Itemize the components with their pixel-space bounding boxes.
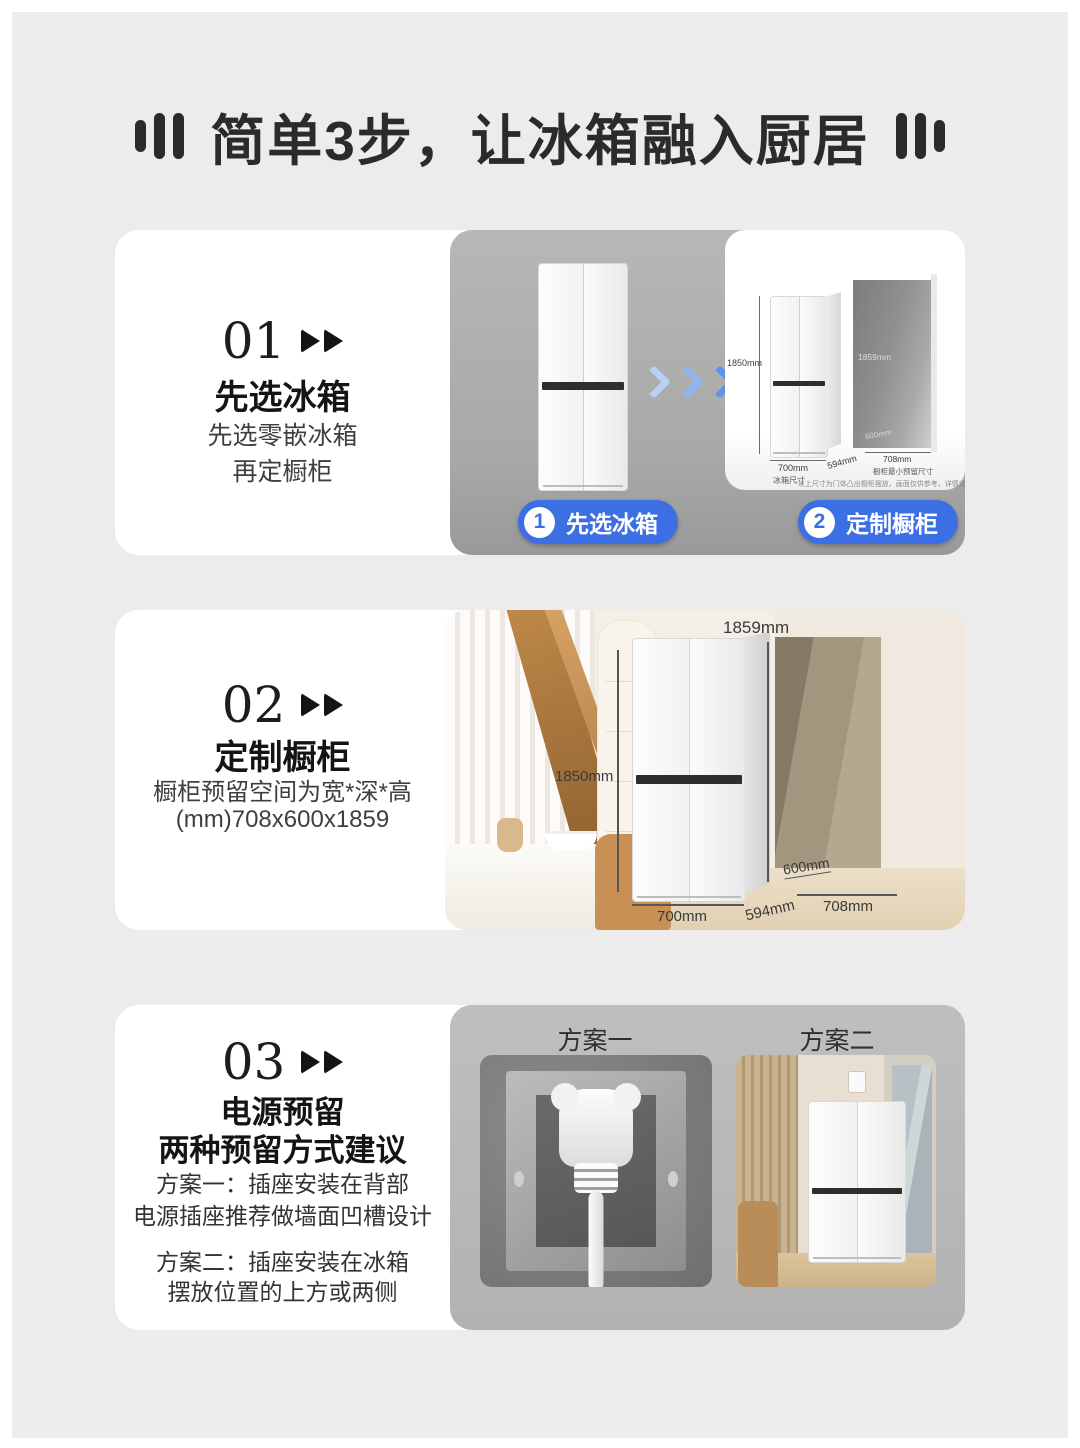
badge-custom-cabinet: 2 定制橱柜 [798,500,958,544]
diagram-recess-height-label: 1859mm [858,352,891,362]
badge2-label: 定制橱柜 [846,505,938,539]
step3-number-row: 03 [115,1037,450,1087]
diagram-fridge-depth-label: 594mm [826,453,858,471]
step1-info: 01 先选冰箱 先选零嵌冰箱 再定橱柜 [115,230,450,555]
step1-number: 01 [222,316,286,366]
step1-number-row: 01 [115,316,450,366]
step3-image-panel: 方案一 方案二 [450,1005,965,1330]
fast-forward-icon [301,693,343,717]
badge2-number: 2 [804,507,835,538]
diagram-fridge [770,296,828,458]
step2-number: 02 [222,680,286,730]
plan2-fridge [808,1101,906,1263]
step2-info: 02 定制橱柜 橱柜预留空间为宽*深*高 (mm)708x600x1859 [115,610,450,930]
wall-socket [848,1071,866,1093]
scene-recess-height-label: 1859mm [723,618,789,638]
diagram-fridge-height-label: 1850mm [727,358,762,368]
plan2-chair [738,1201,778,1287]
step3-info: 03 电源预留 两种预留方式建议 方案一：插座安装在背部 电源插座推荐做墙面凹槽… [115,1005,450,1330]
step1-image-panel: 1850mm 700mm 594mm 冰箱尺寸 1859mm 600mm 708… [450,230,965,555]
plan2-photo-fridge [736,1055,936,1287]
page-title-text: 简单3步，让冰箱融入厨居 [210,96,870,176]
page-title: 简单3步，让冰箱融入厨居 [0,96,1080,176]
diagram-cabinet-recess [853,280,931,448]
title-bars-right-icon [896,113,945,159]
vase [497,818,523,852]
scene-recess-width-label: 708mm [823,898,873,915]
diagram-fridge-width-label: 700mm [778,463,808,473]
plan1-photo-socket [480,1055,712,1287]
fast-forward-icon [301,1050,343,1074]
dimension-diagram: 1850mm 700mm 594mm 冰箱尺寸 1859mm 600mm 708… [725,230,965,490]
recess-height-line [767,642,769,882]
diagram-fridge-side [826,292,841,450]
badge1-number: 1 [524,507,555,538]
scene-fridge-height-label: 1850mm [555,768,613,785]
diagram-recess-caption: 橱柜最小预留尺寸 [873,466,933,477]
step3-line1: 方案一：插座安装在背部 [115,1165,450,1199]
step3-line3: 方案二：插座安装在冰箱 [115,1243,450,1277]
cabinet-recess [775,637,881,880]
step1-heading: 先选冰箱 [115,370,450,419]
fridge-front-illustration [538,263,628,491]
step1-line2: 再定橱柜 [115,452,450,488]
step1-line1: 先选零嵌冰箱 [115,416,450,452]
scene-fridge-width-label: 700mm [657,908,707,925]
step2-number-row: 02 [115,680,450,730]
step-card-2: 02 定制橱柜 橱柜预留空间为宽*深*高 (mm)708x600x1859 [115,610,965,930]
scene-fridge [632,638,746,902]
diagram-recess-width-label: 708mm [883,454,911,464]
step-card-3: 03 电源预留 两种预留方式建议 方案一：插座安装在背部 电源插座推荐做墙面凹槽… [115,1005,965,1330]
fast-forward-icon [301,329,343,353]
page: 简单3步，让冰箱融入厨居 01 先选冰箱 先选零嵌冰箱 再定橱柜 [0,0,1080,1448]
plug-cable [589,1191,604,1287]
step-card-1: 01 先选冰箱 先选零嵌冰箱 再定橱柜 1850mm [115,230,965,555]
step3-number: 03 [222,1037,286,1087]
diagram-footnote: *以上尺寸为门体凸出橱柜摆放，画面仅供参考，详情请以实物为准 [795,479,965,489]
recess-width-line [797,894,897,896]
step2-line1: 橱柜预留空间为宽*深*高 [115,772,450,807]
step2-line2: (mm)708x600x1859 [115,806,450,834]
badge-choose-fridge: 1 先选冰箱 [518,500,678,544]
fridge-height-line [617,650,619,892]
plug-ribs [574,1163,618,1193]
fruit-bowl [545,834,597,850]
plan1-label: 方案一 [480,1021,710,1057]
step2-kitchen-scene: 1850mm 1859mm 700mm 594mm 600mm 708mm [445,610,965,930]
step3-line4: 摆放位置的上方或两侧 [115,1273,450,1307]
plan2-label: 方案二 [722,1021,952,1057]
title-bars-left-icon [135,113,184,159]
step3-subheading: 两种预留方式建议 [115,1125,450,1170]
badge1-label: 先选冰箱 [566,505,658,539]
step3-line2: 电源插座推荐做墙面凹槽设计 [115,1197,450,1231]
cabinet-wall [775,610,965,900]
power-plug [559,1089,633,1167]
fridge-width-line [632,904,744,906]
